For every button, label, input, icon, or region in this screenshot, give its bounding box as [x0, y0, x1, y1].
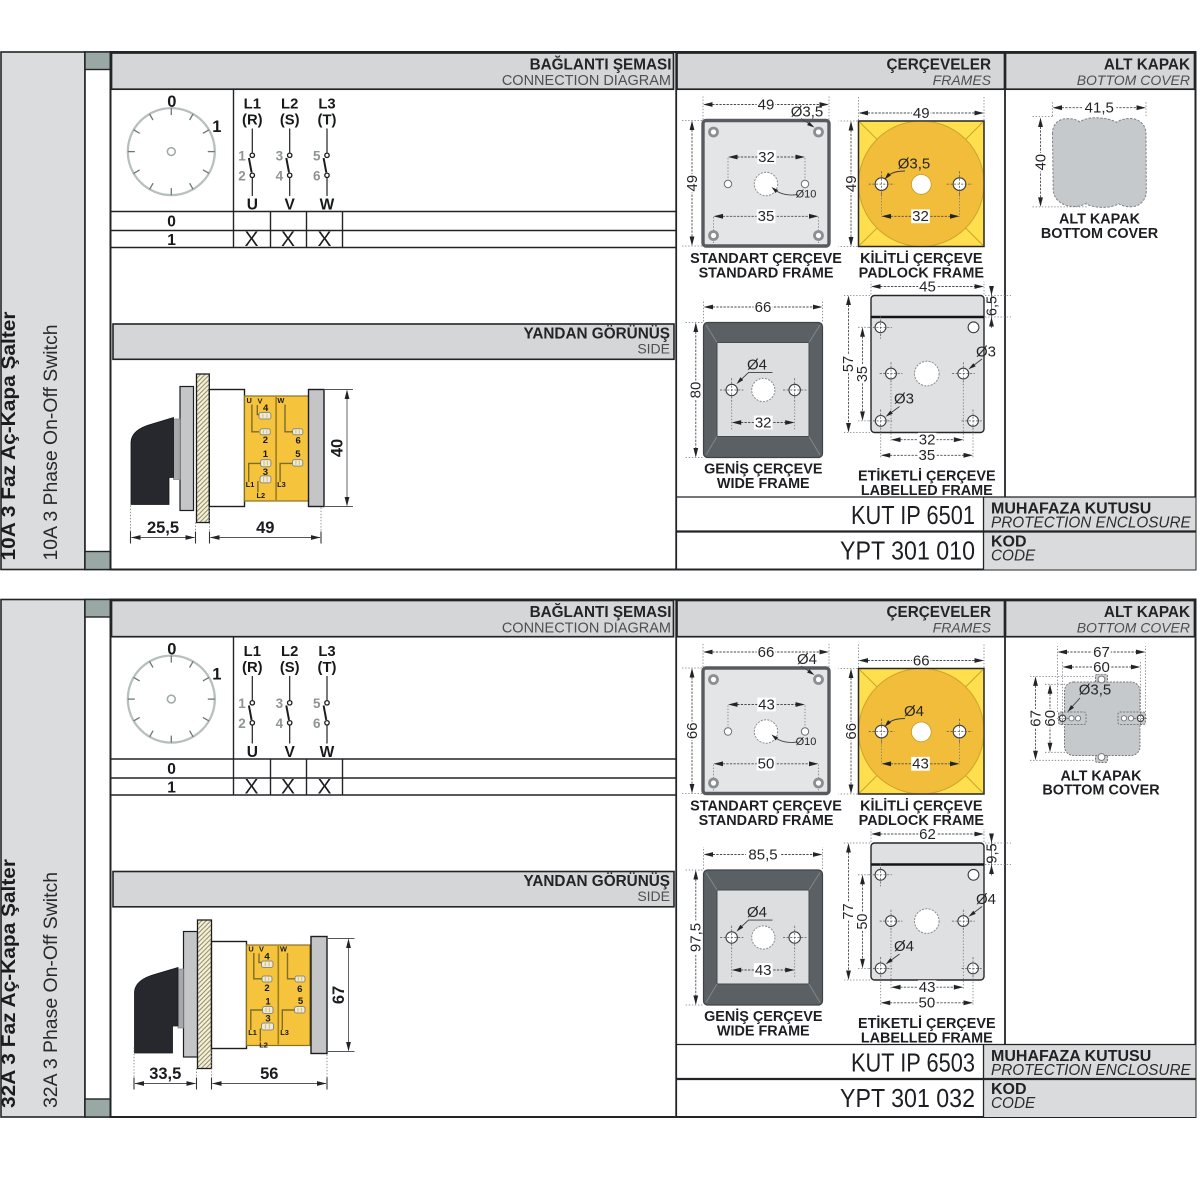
svg-text:CONNECTION DIAGRAM: CONNECTION DIAGRAM: [502, 73, 671, 89]
svg-text:L2: L2: [256, 491, 265, 500]
svg-text:35: 35: [919, 447, 936, 464]
svg-text:L1: L1: [248, 1028, 257, 1037]
svg-text:PROTECTION ENCLOSURE: PROTECTION ENCLOSURE: [991, 515, 1192, 532]
svg-text:49: 49: [684, 175, 701, 192]
svg-text:6: 6: [313, 168, 321, 183]
svg-text:L1: L1: [246, 480, 255, 489]
svg-text:L3: L3: [277, 480, 286, 489]
svg-text:SIDE: SIDE: [637, 341, 670, 357]
svg-text:35: 35: [758, 208, 775, 225]
svg-text:U: U: [247, 197, 258, 214]
svg-text:32: 32: [758, 149, 775, 166]
svg-text:X: X: [244, 228, 258, 251]
svg-text:2: 2: [264, 983, 269, 994]
svg-text:62: 62: [919, 826, 936, 843]
svg-text:5: 5: [295, 449, 301, 460]
svg-text:10A 3 Phase On-Off Switch: 10A 3 Phase On-Off Switch: [41, 325, 62, 561]
svg-text:KUT IP 6501: KUT IP 6501: [851, 502, 975, 530]
svg-text:56: 56: [260, 1065, 278, 1083]
svg-text:Ø10: Ø10: [796, 736, 817, 748]
svg-text:L2: L2: [281, 97, 298, 113]
svg-text:4: 4: [264, 952, 270, 963]
svg-text:49: 49: [758, 96, 775, 113]
svg-text:25,5: 25,5: [147, 519, 179, 537]
svg-text:50: 50: [855, 914, 871, 930]
svg-text:L2: L2: [281, 644, 298, 660]
svg-text:5: 5: [313, 696, 321, 711]
svg-text:43: 43: [758, 696, 775, 713]
svg-text:L1: L1: [244, 644, 261, 660]
svg-text:Ø4: Ø4: [976, 891, 996, 908]
svg-text:U: U: [247, 396, 252, 405]
svg-text:Ø4: Ø4: [904, 703, 924, 720]
svg-text:5: 5: [298, 996, 304, 1007]
svg-text:Ø4: Ø4: [797, 651, 817, 668]
svg-text:6: 6: [313, 716, 321, 731]
svg-text:50: 50: [758, 756, 775, 773]
svg-text:2: 2: [238, 716, 246, 731]
svg-text:BOTTOM COVER: BOTTOM COVER: [1041, 226, 1159, 242]
svg-text:43: 43: [919, 979, 936, 996]
svg-text:L1: L1: [244, 97, 261, 113]
svg-text:40: 40: [1032, 154, 1049, 171]
svg-text:L2: L2: [259, 1041, 268, 1050]
svg-text:32: 32: [755, 414, 772, 431]
svg-text:W: W: [277, 396, 284, 405]
svg-text:W: W: [320, 197, 335, 214]
svg-text:FRAMES: FRAMES: [933, 619, 992, 635]
svg-text:6: 6: [297, 984, 302, 995]
svg-text:U: U: [248, 945, 253, 954]
svg-text:32: 32: [912, 208, 929, 225]
svg-text:BOTTOM COVER: BOTTOM COVER: [1042, 783, 1160, 799]
svg-text:66: 66: [755, 299, 772, 316]
svg-text:1: 1: [212, 666, 221, 684]
svg-text:85,5: 85,5: [748, 846, 777, 863]
svg-text:3: 3: [276, 148, 284, 163]
svg-text:4: 4: [276, 716, 284, 731]
svg-text:43: 43: [912, 756, 929, 773]
svg-text:4: 4: [276, 168, 284, 183]
svg-text:1: 1: [238, 696, 246, 711]
svg-text:W: W: [320, 744, 335, 761]
svg-text:3: 3: [263, 467, 268, 478]
svg-text:0: 0: [167, 93, 176, 111]
svg-text:67: 67: [330, 986, 348, 1004]
svg-text:CODE: CODE: [991, 1095, 1036, 1112]
svg-text:49: 49: [256, 519, 274, 537]
svg-text:YPT 301 032: YPT 301 032: [840, 1085, 975, 1113]
svg-text:V: V: [285, 197, 296, 214]
svg-text:66: 66: [758, 644, 775, 661]
svg-text:1: 1: [167, 232, 176, 249]
svg-text:3: 3: [265, 1014, 270, 1025]
svg-text:41,5: 41,5: [1085, 100, 1114, 117]
svg-text:6: 6: [296, 436, 301, 447]
svg-text:Ø4: Ø4: [747, 357, 767, 374]
svg-text:LABELLED FRAME: LABELLED FRAME: [861, 1030, 993, 1046]
svg-text:X: X: [317, 776, 331, 799]
svg-text:1: 1: [238, 148, 246, 163]
svg-text:49: 49: [843, 175, 860, 192]
svg-text:Ø3: Ø3: [976, 344, 996, 361]
svg-text:66: 66: [684, 722, 701, 739]
svg-text:SIDE: SIDE: [637, 888, 670, 904]
svg-text:L3: L3: [318, 97, 335, 113]
svg-text:CODE: CODE: [991, 548, 1036, 565]
svg-text:33,5: 33,5: [149, 1065, 181, 1083]
svg-text:U: U: [247, 744, 258, 761]
svg-text:L3: L3: [280, 1028, 289, 1037]
svg-text:X: X: [281, 228, 295, 251]
svg-text:1: 1: [167, 779, 176, 796]
svg-text:CONNECTION DIAGRAM: CONNECTION DIAGRAM: [502, 620, 671, 636]
svg-text:80: 80: [688, 382, 705, 399]
svg-text:W: W: [280, 945, 287, 954]
svg-text:6,5: 6,5: [984, 296, 1000, 316]
svg-text:V: V: [258, 397, 263, 406]
svg-text:1: 1: [212, 118, 221, 136]
svg-text:YPT 301 010: YPT 301 010: [840, 538, 975, 566]
svg-text:LABELLED FRAME: LABELLED FRAME: [861, 483, 993, 499]
svg-text:10A 3 Faz Aç-Kapa Şalter: 10A 3 Faz Aç-Kapa Şalter: [0, 311, 20, 561]
svg-text:3: 3: [276, 696, 284, 711]
svg-text:0: 0: [167, 761, 176, 778]
svg-text:2: 2: [263, 435, 268, 446]
svg-text:L3: L3: [318, 644, 335, 660]
svg-text:STANDARD FRAME: STANDARD FRAME: [699, 265, 834, 281]
svg-text:50: 50: [919, 995, 936, 1012]
svg-text:4: 4: [263, 403, 269, 414]
svg-text:(S): (S): [280, 113, 300, 129]
svg-text:KUT IP 6503: KUT IP 6503: [851, 1050, 975, 1078]
svg-text:45: 45: [919, 278, 936, 295]
svg-text:66: 66: [843, 723, 860, 740]
svg-text:35: 35: [855, 366, 871, 382]
svg-text:Ø3,5: Ø3,5: [791, 103, 824, 120]
svg-text:0: 0: [167, 640, 176, 658]
svg-text:60: 60: [1093, 659, 1110, 676]
svg-text:Ø10: Ø10: [796, 189, 817, 201]
svg-text:2: 2: [238, 168, 246, 183]
svg-text:66: 66: [913, 652, 930, 669]
svg-text:(R): (R): [242, 113, 263, 129]
svg-text:0: 0: [167, 214, 176, 231]
svg-text:V: V: [259, 945, 264, 954]
svg-text:Ø3,5: Ø3,5: [1079, 682, 1112, 699]
svg-text:X: X: [317, 228, 331, 251]
svg-text:49: 49: [913, 105, 930, 122]
svg-text:(T): (T): [318, 113, 337, 129]
svg-text:97,5: 97,5: [688, 923, 705, 952]
svg-text:1: 1: [263, 449, 269, 460]
svg-text:X: X: [281, 776, 295, 799]
svg-text:STANDARD FRAME: STANDARD FRAME: [699, 813, 834, 829]
svg-text:WIDE FRAME: WIDE FRAME: [717, 476, 810, 492]
svg-text:32A 3 Faz Aç-Kapa Şalter: 32A 3 Faz Aç-Kapa Şalter: [0, 858, 20, 1108]
svg-text:32A 3 Phase On-Off Switch: 32A 3 Phase On-Off Switch: [41, 872, 62, 1108]
svg-text:Ø3: Ø3: [894, 390, 914, 407]
svg-text:9,5: 9,5: [984, 843, 1000, 863]
svg-text:Ø3,5: Ø3,5: [898, 156, 931, 173]
svg-text:X: X: [244, 776, 258, 799]
svg-text:Ø4: Ø4: [894, 938, 914, 955]
svg-text:BOTTOM COVER: BOTTOM COVER: [1077, 72, 1190, 88]
svg-text:(T): (T): [318, 660, 337, 676]
svg-text:FRAMES: FRAMES: [933, 72, 992, 88]
svg-text:BAĞLANTI ŞEMASI: BAĞLANTI ŞEMASI: [530, 603, 672, 621]
svg-text:V: V: [285, 744, 296, 761]
svg-text:5: 5: [313, 148, 321, 163]
svg-text:WIDE FRAME: WIDE FRAME: [717, 1023, 810, 1039]
svg-text:40: 40: [329, 439, 347, 457]
svg-text:BOTTOM COVER: BOTTOM COVER: [1077, 619, 1190, 635]
svg-text:(S): (S): [280, 660, 300, 676]
svg-text:Ø4: Ø4: [747, 904, 767, 921]
svg-text:32: 32: [919, 432, 936, 449]
svg-text:60: 60: [1042, 710, 1059, 727]
svg-text:43: 43: [755, 962, 772, 979]
svg-text:1: 1: [265, 997, 271, 1008]
svg-text:BAĞLANTI ŞEMASI: BAĞLANTI ŞEMASI: [530, 56, 672, 74]
svg-text:(R): (R): [242, 660, 263, 676]
svg-text:PROTECTION ENCLOSURE: PROTECTION ENCLOSURE: [991, 1062, 1192, 1079]
